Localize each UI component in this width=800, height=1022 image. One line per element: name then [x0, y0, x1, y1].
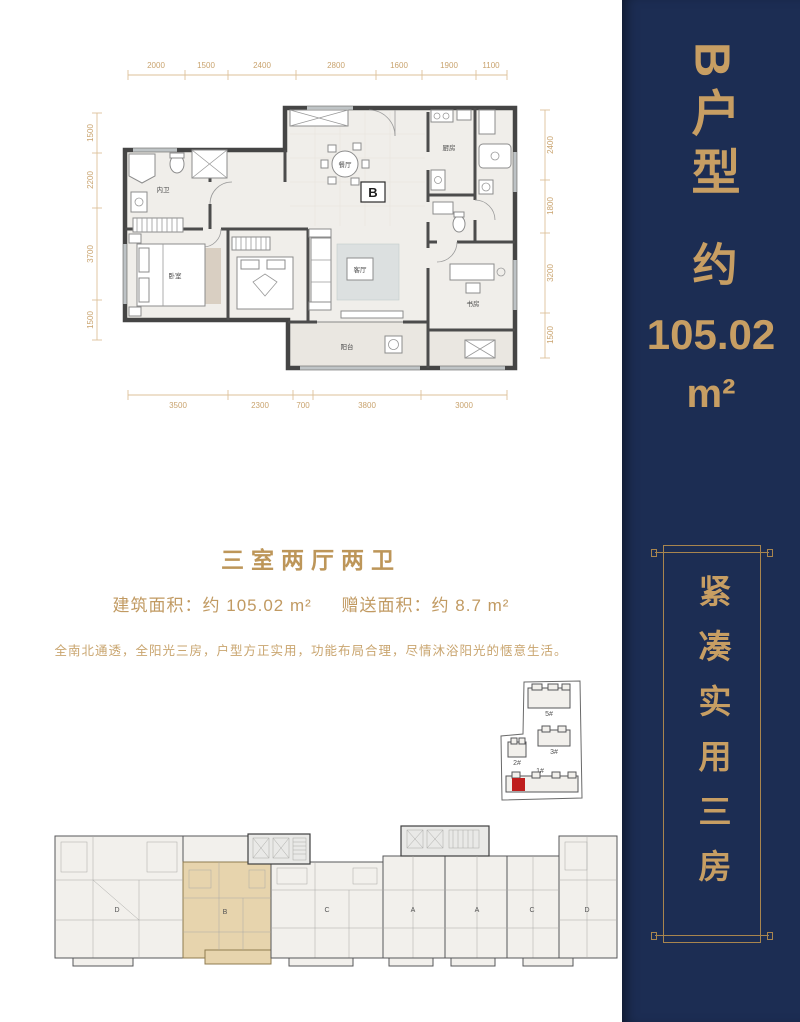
banner-area-unit: m² — [687, 374, 736, 414]
dim-label: 2400 — [253, 61, 271, 70]
plate-label: C — [529, 907, 534, 914]
banner-text-stack: B户型 约 105.02 m² — [622, 42, 800, 414]
unit-marker: B — [361, 182, 385, 202]
side-banner: B户型 约 105.02 m² 紧凑实用三房 — [622, 0, 800, 1022]
plate-label: C — [324, 907, 329, 914]
room-label-dining: 餐厅 — [339, 160, 353, 169]
plate-label: D — [584, 907, 589, 914]
dim-label: 1500 — [86, 311, 95, 329]
banner-area-value: 105.02 — [647, 314, 775, 356]
room-label-master: 卧室 — [169, 271, 183, 280]
dim-label: 2400 — [546, 136, 555, 154]
dim-label: 3000 — [455, 401, 473, 410]
banner-unit-name: B户型 — [687, 42, 736, 205]
scroll-rod-bottom — [655, 935, 769, 936]
site-key-map: 5# 3# 2# 1# — [488, 668, 606, 810]
balcony-floor — [288, 322, 428, 368]
building-floor-plate: D B C A A C D — [53, 820, 621, 970]
unit-marker-letter: B — [368, 185, 377, 200]
room-label-kitchen: 厨房 — [443, 143, 456, 152]
banner-tagline: 紧凑实用三房 — [688, 574, 736, 904]
summary-block: 三室两厅两卫 建筑面积：约 105.02 m² 赠送面积：约 8.7 m² 全南… — [0, 541, 622, 659]
room-label-ensuite: 内卫 — [157, 185, 171, 194]
floor-plan-drawing: 2000 1500 2400 2800 1600 1900 1100 3500 … — [85, 52, 565, 412]
building-label: 2# — [513, 760, 521, 767]
dim-label: 700 — [296, 401, 310, 410]
highlighted-unit-marker — [512, 778, 525, 791]
dimension-left: 1500 2200 3700 1500 — [86, 113, 102, 340]
gift-area-text: 赠送面积：约 8.7 m² — [342, 596, 510, 615]
plate-unit-d-left — [55, 836, 183, 958]
layout-title: 三室两厅两卫 — [0, 541, 622, 575]
dim-label: 3800 — [358, 401, 376, 410]
area-line: 建筑面积：约 105.02 m² 赠送面积：约 8.7 m² — [0, 591, 622, 616]
plate-balconies — [73, 958, 573, 966]
bedside-rug — [205, 248, 221, 304]
plate-unit-d-right — [559, 836, 617, 958]
dim-label: 1800 — [546, 197, 555, 215]
plate-label-highlight: B — [223, 909, 228, 916]
dim-label: 2300 — [251, 401, 269, 410]
dim-label: 3700 — [86, 245, 95, 263]
core-1 — [248, 834, 310, 864]
dimension-right: 2400 1800 3200 1500 — [540, 110, 555, 358]
dimension-bottom: 3500 2300 700 3800 3000 — [128, 390, 507, 410]
dim-label: 2800 — [327, 61, 345, 70]
core-2 — [401, 826, 489, 856]
build-area-text: 建筑面积：约 105.02 m² — [113, 596, 312, 615]
tagline-scroll-frame: 紧凑实用三房 — [663, 545, 761, 943]
brochure-page: 2000 1500 2400 2800 1600 1900 1100 3500 … — [0, 0, 800, 1022]
dim-label: 2000 — [147, 61, 165, 70]
plate-label: A — [411, 907, 416, 914]
room-label-living: 客厅 — [354, 265, 368, 274]
dim-label: 1600 — [390, 61, 408, 70]
dim-label: 3200 — [546, 264, 555, 282]
building-label: 3# — [550, 749, 558, 756]
room-label-study: 书房 — [467, 299, 480, 308]
dim-label: 3500 — [169, 401, 187, 410]
plate-label: D — [114, 907, 119, 914]
dim-label: 1100 — [482, 61, 500, 70]
plate-label: A — [475, 907, 480, 914]
second-bedroom — [237, 257, 293, 309]
room-label-balcony: 阳台 — [341, 342, 354, 351]
scroll-rod-top — [655, 552, 769, 553]
banner-approx: 约 — [689, 241, 734, 286]
plate-unit-b-balcony — [205, 950, 271, 964]
building-label: 5# — [545, 711, 553, 718]
dimension-top: 2000 1500 2400 2800 1600 1900 1100 — [128, 61, 507, 80]
dim-label: 2200 — [86, 171, 95, 189]
dim-label: 1900 — [440, 61, 458, 70]
dim-label: 1500 — [197, 61, 215, 70]
description-text: 全南北通透，全阳光三房，户型方正实用，功能布局合理，尽情沐浴阳光的惬意生活。 — [0, 640, 622, 659]
dim-label: 1500 — [86, 124, 95, 142]
dim-label: 1500 — [546, 326, 555, 344]
